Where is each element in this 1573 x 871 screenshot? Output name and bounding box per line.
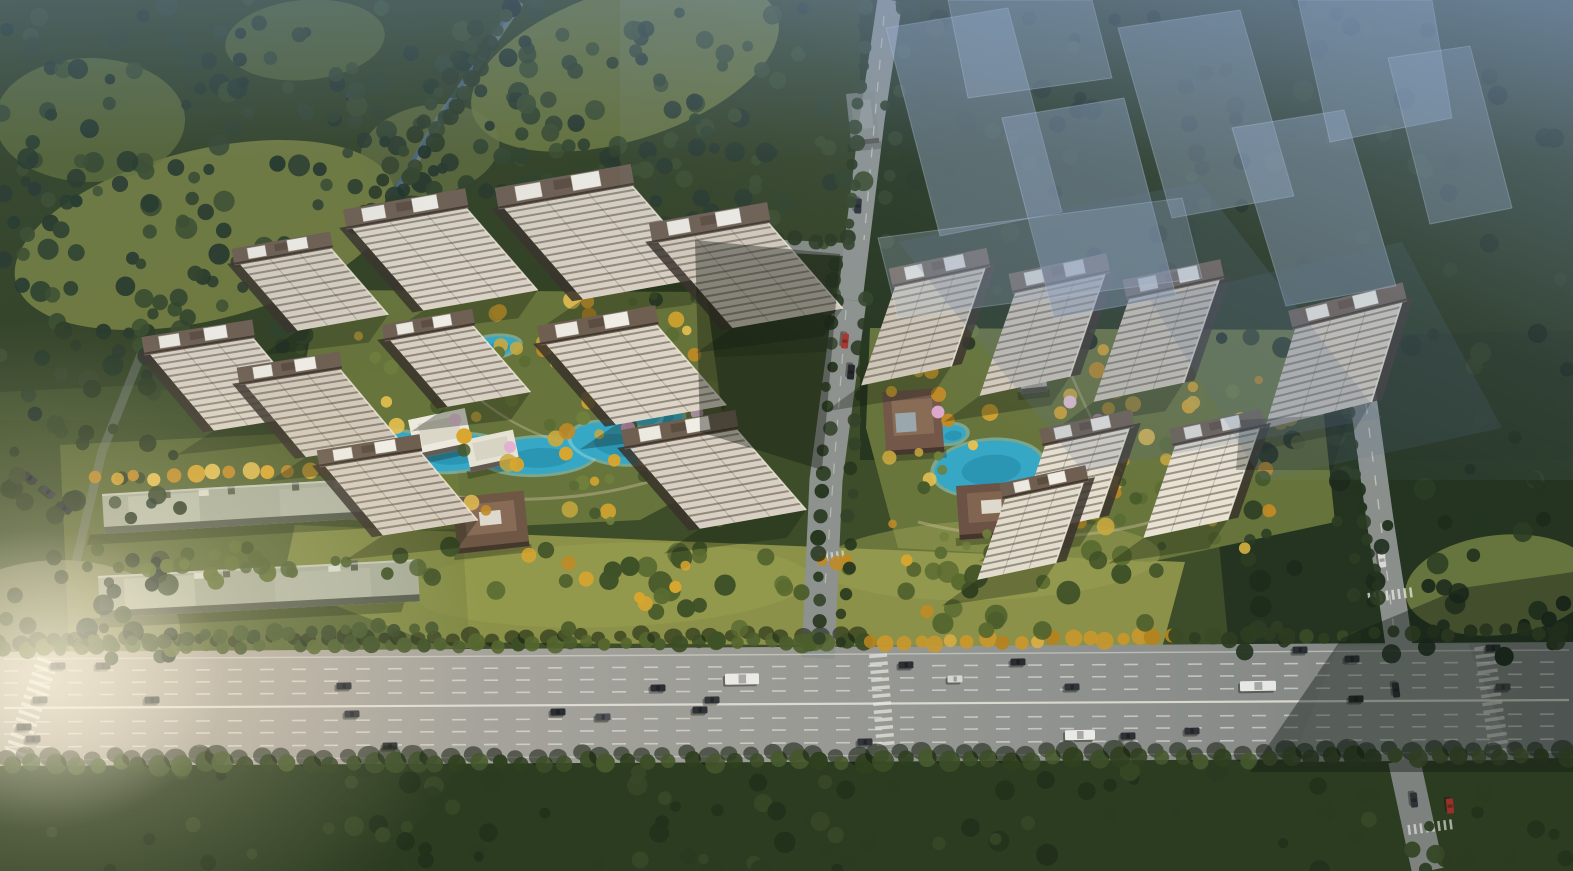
aerial-rendering xyxy=(0,0,1573,871)
aerial-rendering-canvas xyxy=(0,0,1573,871)
